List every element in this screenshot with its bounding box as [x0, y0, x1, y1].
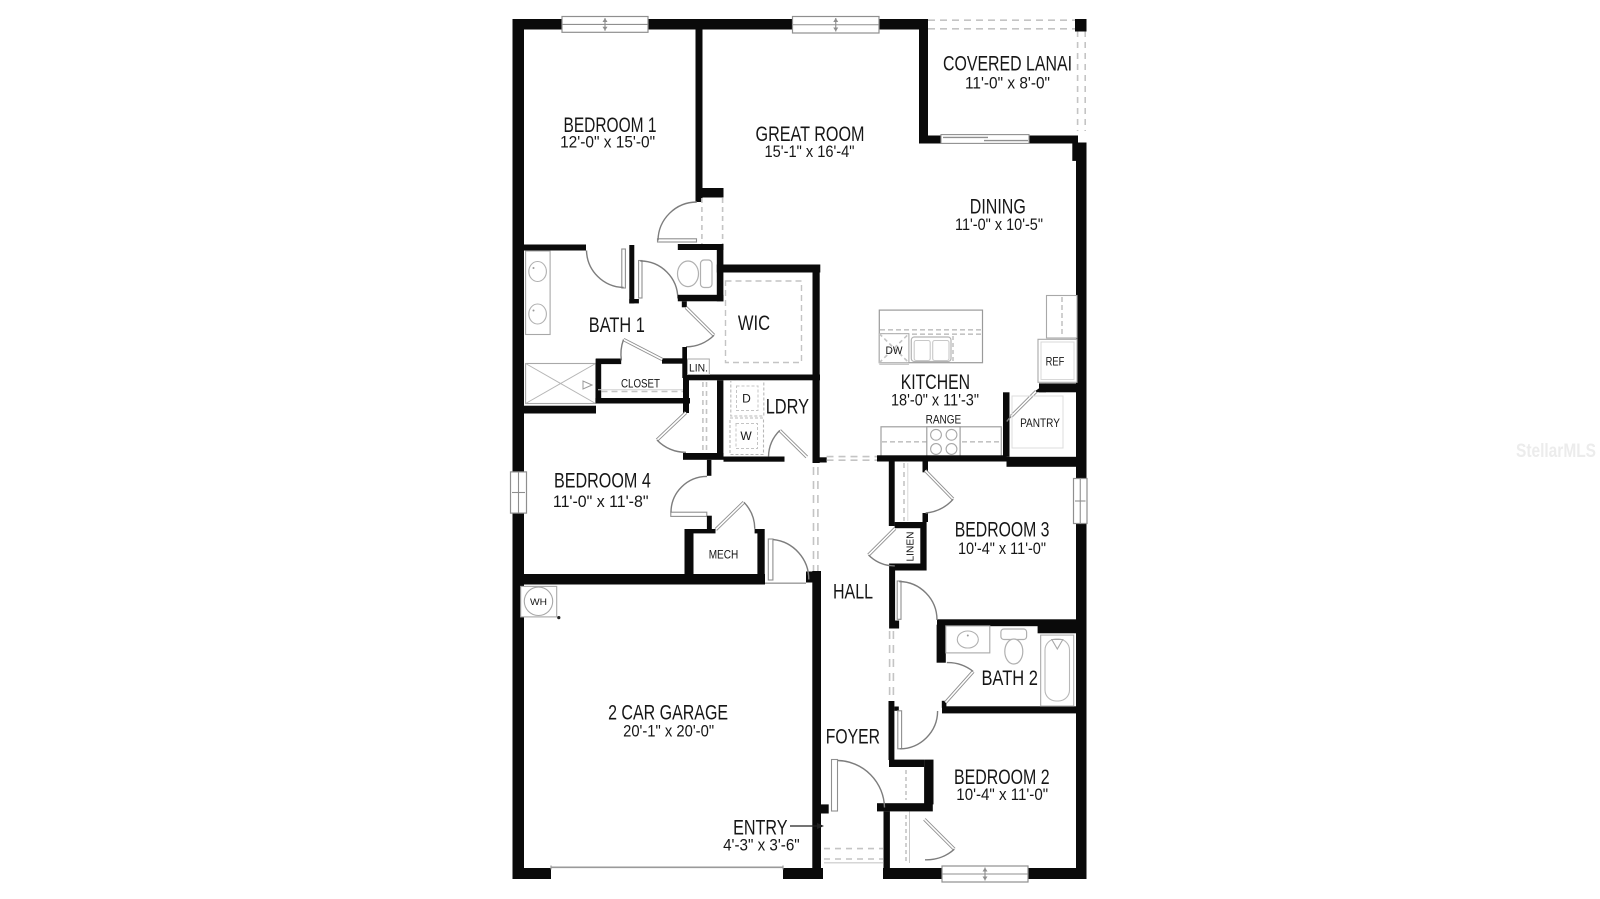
svg-text:BATH 1: BATH 1	[589, 314, 645, 337]
svg-text:4'-3" x 3'-6": 4'-3" x 3'-6"	[723, 837, 800, 855]
svg-text:18'-0" x 11'-3": 18'-0" x 11'-3"	[891, 392, 979, 410]
svg-text:11'-0" x 11'-8": 11'-0" x 11'-8"	[553, 493, 649, 511]
svg-text:20'-1" x 20'-0": 20'-1" x 20'-0"	[623, 723, 714, 741]
svg-text:2 CAR GARAGE: 2 CAR GARAGE	[608, 701, 728, 724]
svg-text:LDRY: LDRY	[766, 396, 809, 419]
svg-text:D: D	[742, 392, 751, 406]
svg-text:10'-4" x 11'-0": 10'-4" x 11'-0"	[956, 786, 1048, 804]
svg-text:BATH 2: BATH 2	[981, 667, 1038, 690]
svg-text:RANGE: RANGE	[926, 414, 962, 426]
svg-text:REF: REF	[1046, 356, 1065, 368]
svg-text:15'-1" x 16'-4": 15'-1" x 16'-4"	[765, 143, 855, 161]
svg-text:FOYER: FOYER	[826, 726, 880, 749]
svg-text:WH: WH	[530, 597, 547, 608]
svg-text:12'-0" x 15'-0": 12'-0" x 15'-0"	[560, 134, 655, 152]
svg-text:StellarMLS: StellarMLS	[1516, 441, 1596, 462]
svg-text:11'-0" x 8'-0": 11'-0" x 8'-0"	[965, 75, 1050, 93]
svg-text:BEDROOM 4: BEDROOM 4	[554, 470, 651, 493]
svg-text:COVERED LANAI: COVERED LANAI	[943, 53, 1072, 76]
svg-text:10'-4" x 11'-0": 10'-4" x 11'-0"	[958, 540, 1046, 558]
svg-text:WIC: WIC	[738, 312, 770, 335]
svg-text:PANTRY: PANTRY	[1020, 418, 1060, 430]
svg-text:BEDROOM 3: BEDROOM 3	[955, 519, 1050, 542]
svg-text:LINEN: LINEN	[905, 532, 917, 562]
svg-text:DW: DW	[886, 345, 904, 357]
svg-text:11'-0" x 10'-5": 11'-0" x 10'-5"	[955, 216, 1043, 234]
svg-text:HALL: HALL	[833, 580, 873, 603]
svg-text:LIN.: LIN.	[689, 363, 708, 375]
svg-text:MECH: MECH	[709, 550, 739, 562]
svg-text:W: W	[740, 429, 752, 443]
svg-text:CLOSET: CLOSET	[621, 378, 660, 390]
